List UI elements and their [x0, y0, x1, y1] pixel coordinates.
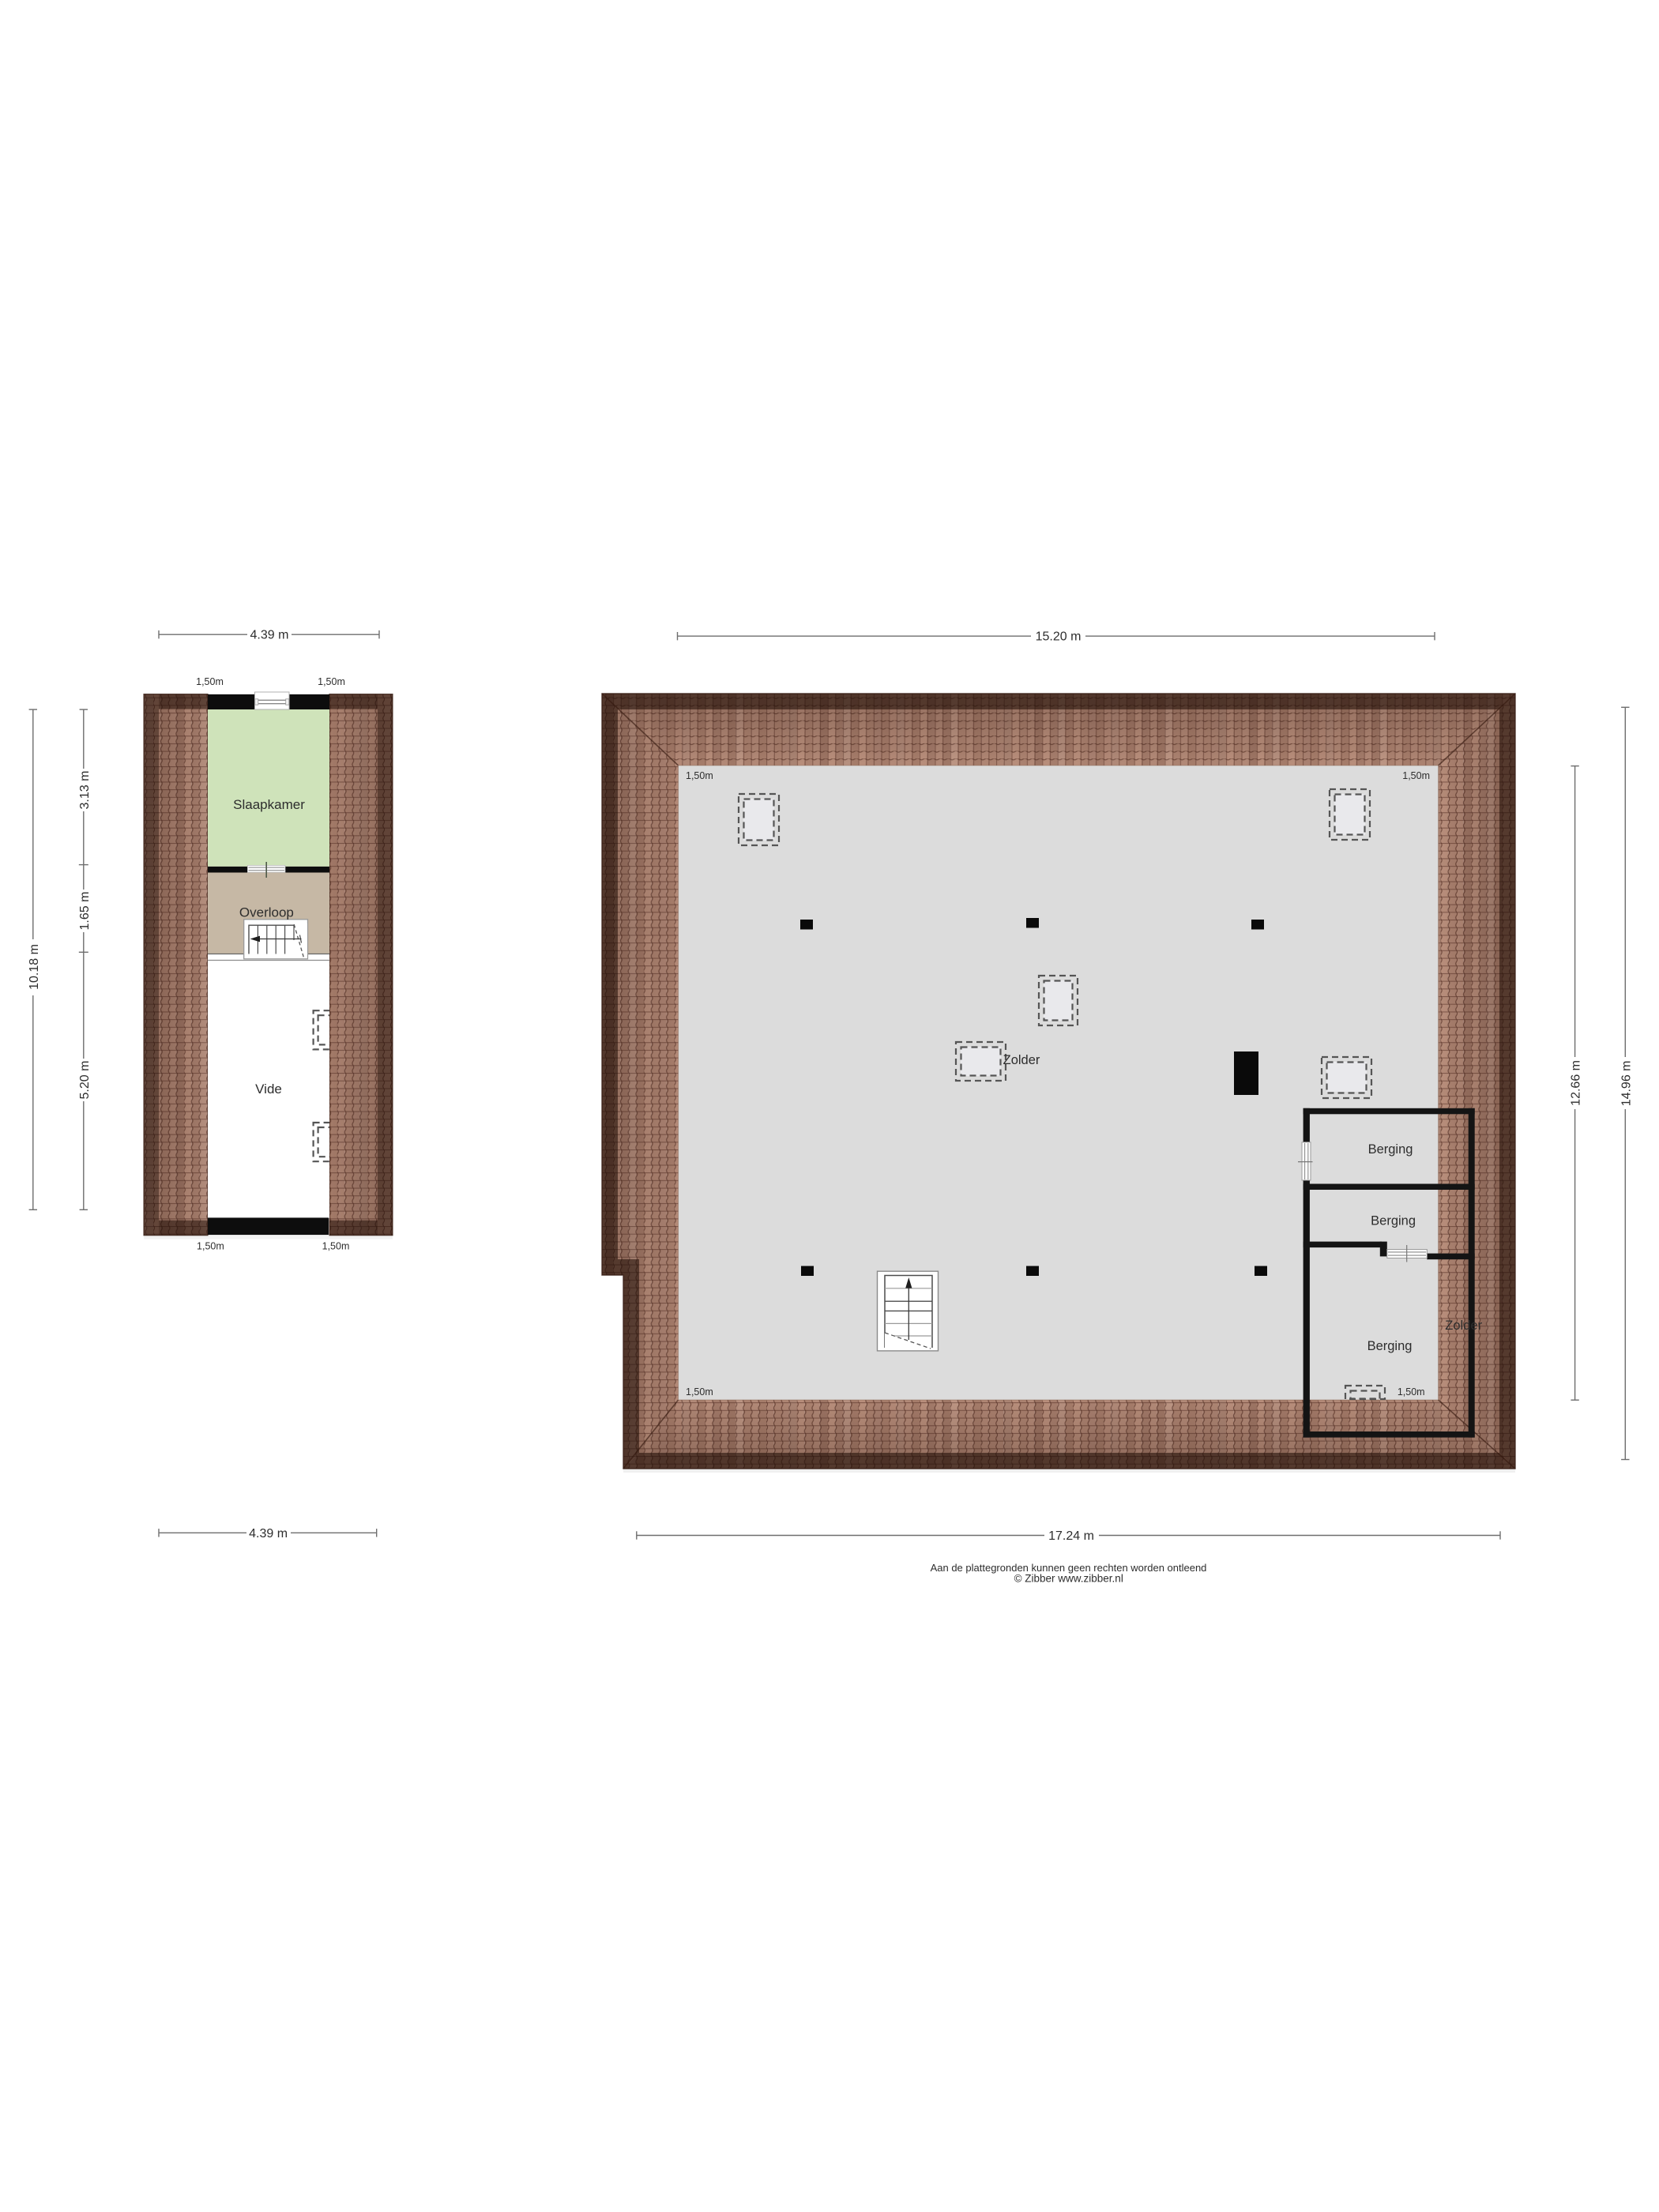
svg-text:© Zibber www.zibber.nl: © Zibber www.zibber.nl — [1014, 1573, 1123, 1585]
svg-text:1,50m: 1,50m — [686, 1386, 713, 1398]
svg-text:1,50m: 1,50m — [197, 1241, 224, 1252]
svg-text:Berging: Berging — [1368, 1142, 1413, 1157]
svg-text:Vide: Vide — [255, 1082, 282, 1097]
svg-text:12.66 m: 12.66 m — [1570, 1060, 1583, 1106]
svg-text:Zolder: Zolder — [1003, 1053, 1040, 1067]
svg-text:1,50m: 1,50m — [196, 676, 224, 687]
svg-text:4.39 m: 4.39 m — [250, 628, 289, 641]
svg-text:Berging: Berging — [1371, 1214, 1416, 1228]
svg-text:1.65 m: 1.65 m — [78, 892, 92, 931]
svg-text:14.96 m: 14.96 m — [1619, 1060, 1633, 1106]
svg-text:10.18 m: 10.18 m — [28, 944, 41, 990]
svg-text:Zolder: Zolder — [1445, 1319, 1482, 1333]
svg-text:3.13 m: 3.13 m — [78, 771, 92, 810]
svg-text:1,50m: 1,50m — [318, 676, 345, 687]
svg-text:1,50m: 1,50m — [1402, 770, 1430, 781]
svg-text:5.20 m: 5.20 m — [78, 1061, 92, 1100]
svg-text:Berging: Berging — [1367, 1339, 1413, 1353]
svg-text:Overloop: Overloop — [239, 905, 294, 920]
svg-text:Slaapkamer: Slaapkamer — [233, 797, 305, 812]
svg-text:1,50m: 1,50m — [686, 770, 713, 781]
svg-text:15.20 m: 15.20 m — [1036, 630, 1082, 643]
svg-text:17.24 m: 17.24 m — [1048, 1529, 1094, 1543]
svg-text:1,50m: 1,50m — [1398, 1386, 1425, 1398]
svg-text:4.39 m: 4.39 m — [249, 1527, 288, 1540]
svg-text:1,50m: 1,50m — [322, 1241, 350, 1252]
